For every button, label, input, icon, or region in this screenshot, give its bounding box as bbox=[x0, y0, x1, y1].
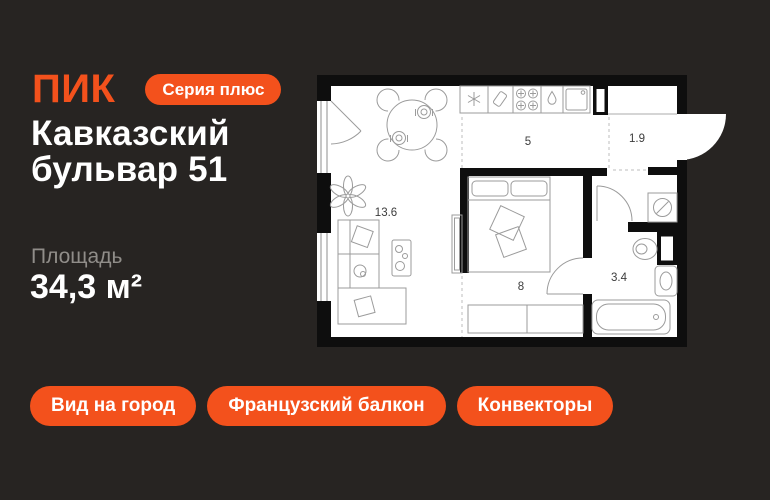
room-label-living: 13.6 bbox=[375, 207, 397, 219]
feature-tag-convectors[interactable]: Конвекторы bbox=[457, 386, 614, 426]
room-label-kitchen: 5 bbox=[525, 136, 531, 148]
entrance-opening bbox=[677, 114, 687, 160]
window-top bbox=[317, 101, 331, 173]
area-label: Площадь bbox=[31, 245, 122, 269]
floor-plan: 13.6 5 1.9 8 3.4 bbox=[310, 68, 750, 358]
series-badge[interactable]: Серия плюс bbox=[145, 74, 281, 105]
plan-base bbox=[317, 75, 687, 347]
kitchen-counter bbox=[460, 86, 590, 113]
room-label-bedroom: 8 bbox=[518, 281, 524, 293]
brand-row: ПИК Серия плюс bbox=[32, 69, 281, 109]
listing-card: ПИК Серия плюс Кавказский бульвар 51 Пло… bbox=[0, 0, 770, 500]
feature-tag-city-view[interactable]: Вид на город bbox=[30, 386, 196, 426]
listing-title: Кавказский бульвар 51 bbox=[31, 116, 281, 188]
room-label-bathroom: 3.4 bbox=[611, 272, 628, 284]
pik-logo: ПИК bbox=[32, 69, 115, 109]
area-value: 34,3 м² bbox=[30, 268, 142, 307]
window-bottom bbox=[317, 233, 331, 301]
room-label-hallway: 1.9 bbox=[629, 133, 645, 145]
feature-tags: Вид на город Французский балкон Конвекто… bbox=[30, 386, 613, 426]
feature-tag-french-balcony[interactable]: Французский балкон bbox=[207, 386, 445, 426]
